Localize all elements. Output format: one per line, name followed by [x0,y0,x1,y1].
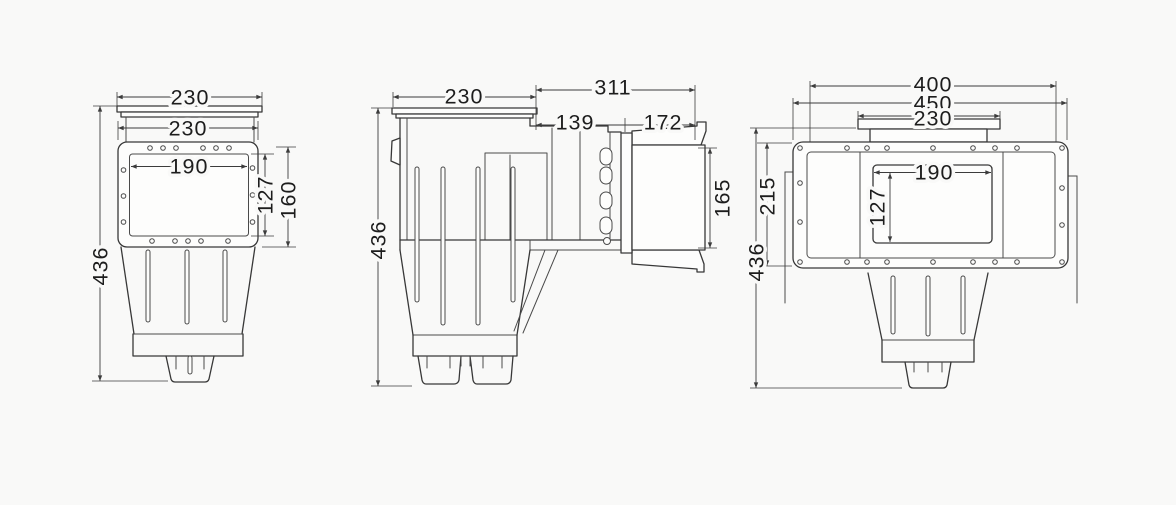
dim-side-throat-depth: 139 [556,111,595,135]
side-mounting-flange [621,133,632,253]
dim-front-window-width: 190 [170,155,209,179]
skimmer-technical-drawing: 230 230 190 127 160 436 [0,0,1176,505]
dim-front-lid-width: 230 [171,86,210,110]
drawing-canvas: 230 230 190 127 160 436 [0,0,1176,505]
side-lid [392,108,537,114]
dim-side-overall-height: 436 [367,221,391,260]
side-spigot-right [470,356,513,384]
side-view: 230 311 139 172 165 436 [367,76,735,386]
rear-view: 400 450 230 190 127 215 [745,73,1077,388]
side-latch-clip [391,138,400,165]
dim-rear-overall-height: 436 [745,243,769,282]
dim-side-tank-depth: 230 [445,85,484,109]
front-skimmer-outline [117,106,262,382]
side-lid-lip [396,114,533,118]
dim-side-overall-depth: 311 [594,76,631,100]
dim-rear-window-width: 190 [915,161,954,185]
dim-front-faceplate-width: 230 [169,117,208,141]
side-skimmer-outline [391,108,706,384]
dim-rear-plate-height: 215 [756,177,780,216]
dim-rear-window-height: 127 [866,188,890,227]
front-view: 230 230 190 127 160 436 [89,86,301,382]
side-basket [485,153,547,240]
dim-front-window-height: 127 [254,176,278,215]
side-spigot-left [418,356,461,384]
dim-front-faceplate-height: 160 [277,181,301,220]
rear-collar [870,129,987,142]
front-body [121,247,255,382]
dim-side-faceplate-height: 165 [711,179,735,218]
dim-rear-lid-width: 230 [914,107,953,131]
rear-skimmer-outline [785,119,1077,388]
dim-side-faceplate-depth: 172 [644,111,683,135]
rear-body [868,273,988,388]
dim-front-overall-height: 436 [89,247,113,286]
